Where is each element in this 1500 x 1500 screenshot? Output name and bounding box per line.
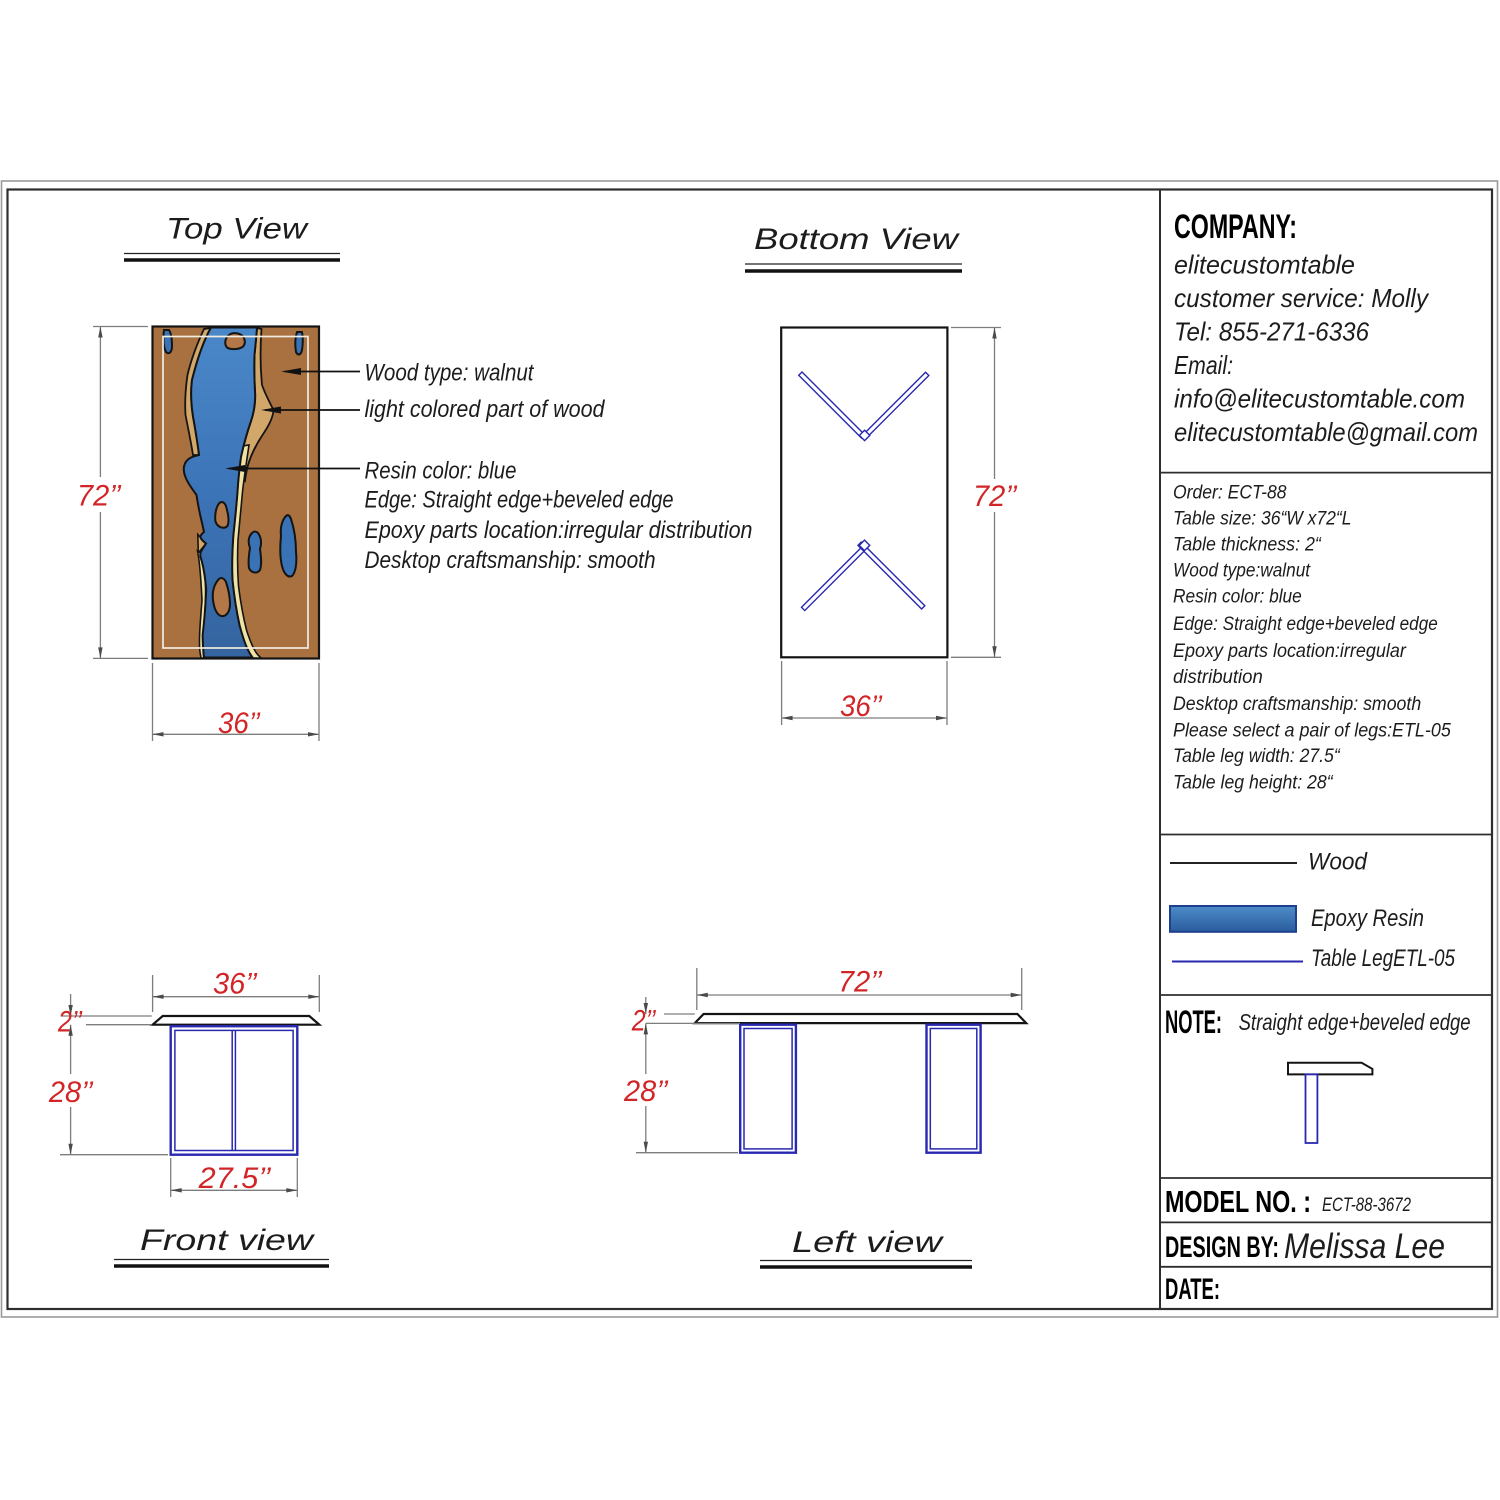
svg-text:Order: ECT-88: Order: ECT-88 [1173, 483, 1287, 504]
svg-text:Resin color: blue: Resin color: blue [1173, 587, 1302, 608]
svg-text:distribution: distribution [1173, 667, 1263, 688]
svg-text:ECT-88-3672: ECT-88-3672 [1322, 1195, 1411, 1216]
svg-text:DESIGN BY:: DESIGN BY: [1165, 1231, 1279, 1264]
svg-text:Tel: 855-271-6336: Tel: 855-271-6336 [1174, 317, 1369, 347]
svg-text:Table size: 36“W x72“L: Table size: 36“W x72“L [1173, 509, 1352, 530]
svg-text:NOTE:: NOTE: [1165, 1004, 1222, 1040]
svg-text:elitecustomtable@gmail.com: elitecustomtable@gmail.com [1174, 417, 1478, 447]
svg-text:36’’: 36’’ [213, 968, 258, 1001]
svg-text:COMPANY:: COMPANY: [1174, 208, 1297, 246]
svg-text:Desktop craftsmanship: smooth: Desktop craftsmanship: smooth [365, 547, 656, 574]
svg-text:Wood type: walnut: Wood type: walnut [365, 360, 535, 387]
svg-text:Table thickness: 2“: Table thickness: 2“ [1173, 535, 1322, 556]
svg-text:Top View: Top View [166, 213, 310, 246]
svg-text:2’’: 2’’ [631, 1005, 657, 1038]
svg-text:Melissa Lee: Melissa Lee [1284, 1227, 1445, 1266]
svg-text:72’’: 72’’ [77, 480, 122, 513]
svg-text:28’’: 28’’ [623, 1075, 669, 1108]
svg-text:27.5’’: 27.5’’ [198, 1162, 272, 1195]
svg-text:elitecustomtable: elitecustomtable [1174, 250, 1355, 280]
svg-text:Table leg width: 27.5“: Table leg width: 27.5“ [1173, 746, 1341, 767]
svg-text:info@elitecustomtable.com: info@elitecustomtable.com [1174, 384, 1465, 414]
svg-text:Resin color: blue: Resin color: blue [365, 457, 517, 484]
svg-text:Epoxy parts location:irregular: Epoxy parts location:irregular distribut… [365, 517, 753, 544]
svg-text:DATE:: DATE: [1165, 1273, 1220, 1306]
svg-text:28’’: 28’’ [48, 1076, 94, 1109]
svg-text:Email:: Email: [1174, 350, 1233, 380]
svg-text:Straight edge+beveled edge: Straight edge+beveled edge [1239, 1009, 1471, 1035]
svg-text:MODEL NO. :: MODEL NO. : [1165, 1184, 1311, 1219]
svg-text:Please select a pair of legs:E: Please select a pair of legs:ETL-05 [1173, 720, 1451, 741]
svg-text:Left view: Left view [792, 1226, 945, 1259]
svg-text:72’’: 72’’ [838, 966, 883, 999]
svg-text:Front view: Front view [140, 1224, 316, 1257]
svg-text:72’’: 72’’ [973, 480, 1018, 513]
svg-text:Table leg height: 28“: Table leg height: 28“ [1173, 772, 1334, 793]
svg-text:Bottom View: Bottom View [754, 223, 961, 256]
svg-text:Edge: Straight edge+beveled ed: Edge: Straight edge+beveled edge [1173, 614, 1438, 635]
svg-text:Table LegETL-05: Table LegETL-05 [1311, 945, 1456, 972]
svg-text:Epoxy parts location:irregular: Epoxy parts location:irregular [1173, 641, 1407, 662]
svg-text:Edge: Straight edge+beveled ed: Edge: Straight edge+beveled edge [365, 487, 674, 514]
svg-text:Wood type:walnut: Wood type:walnut [1173, 561, 1311, 582]
svg-text:36’’: 36’’ [218, 707, 261, 740]
svg-text:36’’: 36’’ [840, 690, 883, 723]
svg-text:Wood: Wood [1308, 849, 1368, 876]
svg-text:light colored part of wood: light colored part of wood [365, 396, 606, 423]
svg-text:customer service: Molly: customer service: Molly [1174, 283, 1430, 313]
svg-text:Epoxy Resin: Epoxy Resin [1311, 905, 1424, 932]
svg-text:Desktop craftsmanship: smooth: Desktop craftsmanship: smooth [1173, 694, 1421, 715]
